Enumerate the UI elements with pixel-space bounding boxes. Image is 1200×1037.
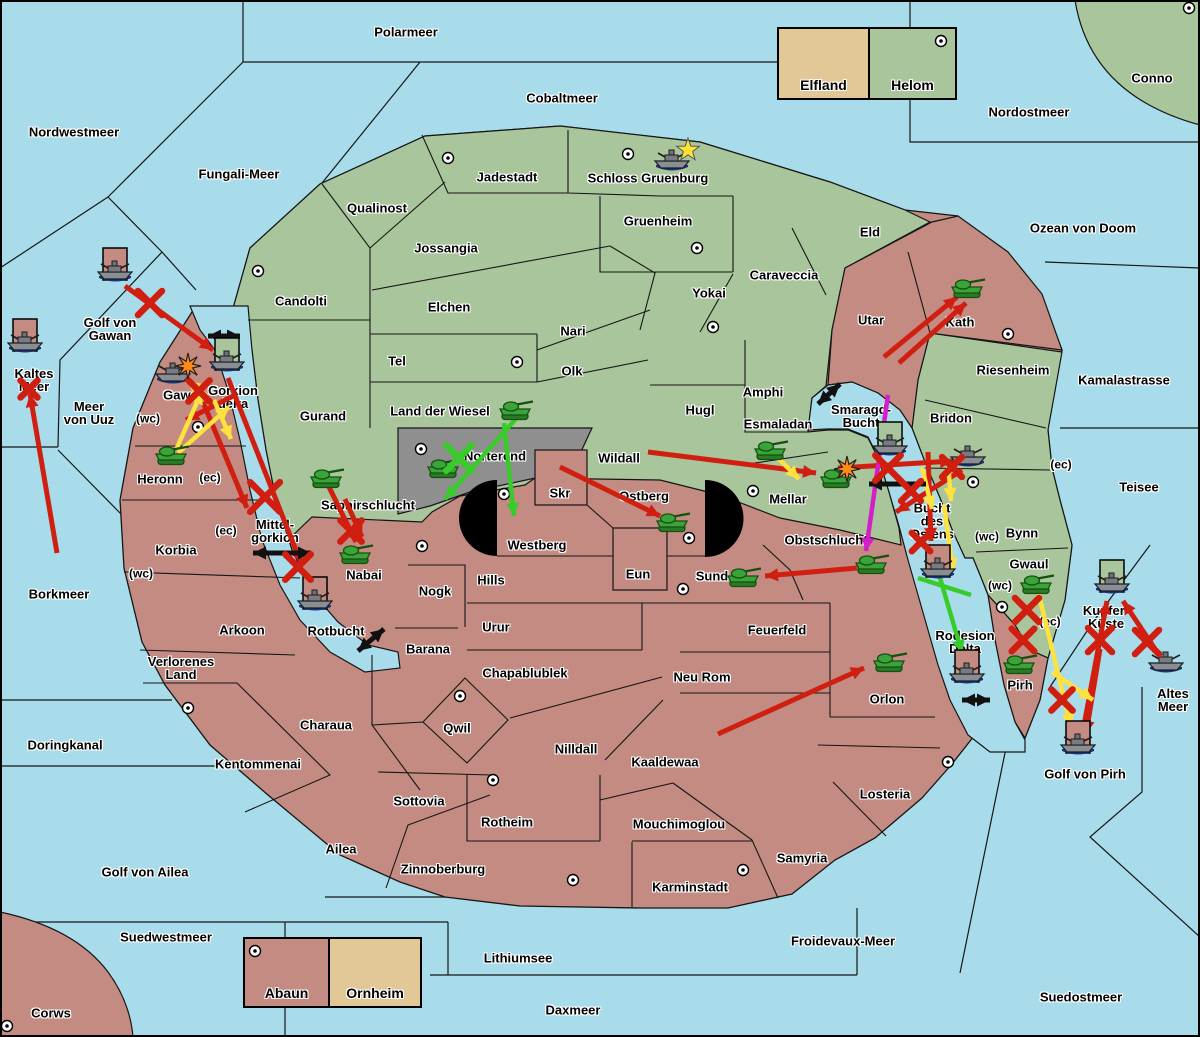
legend-elfland-label: Elfland [800,77,847,93]
region-skr[interactable] [535,450,587,505]
legend-elfland: Elfland [779,29,870,98]
legend-abaun: Abaun [245,939,330,1006]
legend-helom-label: Helom [891,77,934,93]
region-eun[interactable] [613,528,667,590]
legend-bottom: Abaun Ornheim [243,937,422,1008]
legend-ornheim-label: Ornheim [346,985,404,1001]
legend-helom: Helom [870,29,955,98]
map-terrain[interactable] [0,0,1200,1037]
legend-top: Elfland Helom [777,27,957,100]
game-map: Elfland Helom Abaun Ornheim PolarmeerCob… [0,0,1200,1037]
legend-abaun-label: Abaun [265,985,309,1001]
legend-ornheim: Ornheim [330,939,420,1006]
